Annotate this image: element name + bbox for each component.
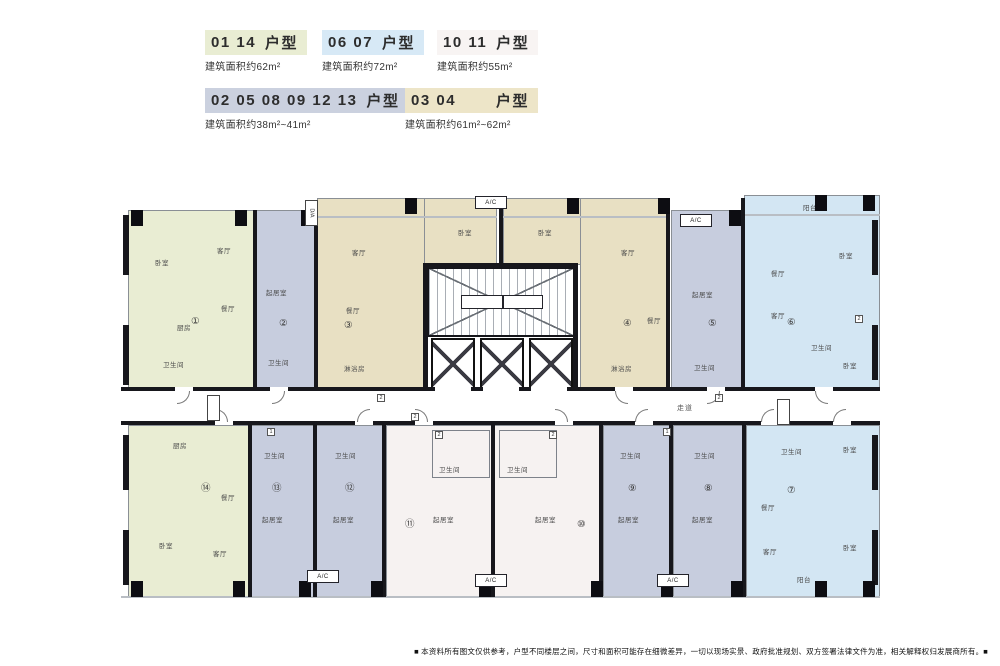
legend-area-text: 建筑面积约55m² [437, 58, 538, 73]
facade-pillar [233, 581, 245, 597]
room-label-shower: 淋浴房 [611, 367, 632, 374]
facade-pillar [131, 210, 143, 226]
unit-02: 起居室 卫生间 ② [256, 210, 316, 390]
legend-swatch: 10 11户型 [437, 30, 538, 55]
facade-pillar [371, 581, 383, 597]
legend-item-10-11: 10 11户型 建筑面积约55m² [437, 30, 538, 73]
unit-07: 卫生间 卧室 餐厅 客厅 卧室 阳台 ⑦ [746, 425, 880, 597]
corridor-label: 走道 [677, 403, 693, 413]
unit-number-05: ⑤ [708, 319, 717, 329]
room-label-bedroom: 卧室 [155, 261, 169, 268]
legend-area-text: 建筑面积约62m² [205, 58, 307, 73]
unit-10: 卫生间 起居室 ⑩ [494, 425, 602, 597]
elevator-3 [529, 338, 573, 390]
elevator-1 [431, 338, 475, 390]
unit-number-12: ⑫ [345, 484, 355, 494]
wall-segment [741, 198, 745, 390]
room-label-studio: 起居室 [692, 518, 713, 525]
room-label-bath: 卫生间 [811, 346, 832, 353]
room-label-balcony: 阳台 [797, 578, 811, 585]
room-label-studio: 起居室 [262, 518, 283, 525]
facade-pillar [299, 581, 311, 597]
door-opening [531, 387, 567, 391]
room-label-bath: 卫生间 [335, 454, 356, 461]
wall-segment [423, 265, 428, 390]
fixture-badge: 2 [855, 315, 863, 323]
room-label-living: 客厅 [621, 251, 635, 258]
legend-swatch: 03 04户型 [405, 88, 538, 113]
unit-05: 起居室 卫生间 ⑤ [671, 210, 743, 390]
unit-number-02: ② [279, 319, 288, 329]
legend-unit-numbers: 06 07 [328, 34, 373, 51]
room-label-dining: 餐厅 [221, 307, 235, 314]
facade-pillar [731, 581, 743, 597]
unit-number-13: ⑬ [272, 484, 282, 494]
door-opening [435, 387, 471, 391]
legend-item-06-07: 06 07户型 建筑面积约72m² [322, 30, 424, 73]
fixture-badge: 2 [435, 431, 443, 439]
fixture-badge: 2 [715, 394, 723, 402]
room-label-bedroom: 卧室 [458, 231, 472, 238]
room-label-living: 客厅 [217, 249, 231, 256]
stairwell [427, 267, 575, 337]
room-label-bedroom: 卧室 [839, 254, 853, 261]
wall-segment [123, 435, 129, 490]
facade-pillar [863, 195, 875, 211]
room-label-bedroom: 卧室 [843, 448, 857, 455]
wall-segment [382, 425, 386, 597]
legend-unit-suffix: 户型 [366, 90, 399, 111]
unit-number-08: ⑧ [704, 484, 713, 494]
room-label-dining: 餐厅 [771, 272, 785, 279]
room-label-bath: 卫生间 [781, 450, 802, 457]
fixture-badge: 1 [663, 428, 671, 436]
legend-unit-suffix: 户型 [496, 32, 529, 53]
facade-pillar [131, 581, 143, 597]
room-label-studio: 起居室 [535, 518, 556, 525]
balcony-rail [503, 216, 670, 218]
legend-unit-suffix: 户型 [265, 32, 298, 53]
room-label-bedroom: 卧室 [843, 364, 857, 371]
door-opening [483, 387, 519, 391]
unit-11: 卫生间 起居室 ⑪ [386, 425, 493, 597]
facade-pillar [235, 210, 247, 226]
fixture-badge: 2 [377, 394, 385, 402]
wall-segment [248, 425, 252, 597]
duct-label: D/A [308, 208, 314, 217]
unit-number-01: ① [191, 317, 200, 327]
wall-segment [872, 325, 878, 380]
disclaimer-text: ■ 本资料所有图文仅供参考，户型不同楼层之间，尺寸和面积可能存在细微差异，一切以… [414, 646, 988, 657]
legend-unit-numbers: 10 11 [443, 34, 487, 51]
facade-pillar [863, 581, 875, 597]
legend-swatch: 06 07户型 [322, 30, 424, 55]
wall-segment [123, 530, 129, 585]
balcony-rail [317, 216, 497, 218]
room-label-kitchen: 厨房 [177, 326, 191, 333]
unit-03: 客厅 餐厅 淋浴房 ③ [317, 198, 425, 390]
wall-segment [573, 265, 578, 390]
legend-area-text: 建筑面积约38m²~41m² [205, 116, 408, 131]
pipe-shaft [207, 395, 220, 421]
unit-number-07: ⑦ [787, 486, 796, 496]
wall-segment [669, 425, 673, 597]
ac-platform: A/C [475, 574, 507, 587]
unit-09: 卫生间 起居室 ⑨ [603, 425, 672, 597]
fixture-badge: 1 [267, 428, 275, 436]
room-label-studio: 起居室 [333, 518, 354, 525]
pipe-shaft [777, 399, 790, 425]
unit-06: 阳台 餐厅 客厅 卧室 卧室 卫生间 ⑥ [744, 195, 880, 390]
room-label-living: 客厅 [213, 552, 227, 559]
legend-area-text: 建筑面积约72m² [322, 58, 424, 73]
floor-plan: 走道 卧室 客厅 餐厅 厨房 卫生间 ① 起居室 卫生间 ② 阳台 卧室 客厅 … [115, 185, 880, 600]
room-label-dining: 餐厅 [647, 319, 661, 326]
wall-segment [491, 425, 495, 597]
wall-segment [123, 215, 129, 275]
unit-number-06: ⑥ [787, 318, 796, 328]
ac-platform: A/C [475, 196, 507, 209]
unit-13: 卫生间 起居室 ⑬ [251, 425, 315, 597]
legend-item-02-05-08-09-12-13: 02 05 08 09 12 13户型 建筑面积约38m²~41m² [205, 88, 408, 131]
wall-segment [599, 425, 603, 597]
unit-04: 客厅 餐厅 淋浴房 ④ [580, 198, 670, 390]
facade-pillar [658, 198, 670, 214]
unit-01: 卧室 客厅 餐厅 厨房 卫生间 ① [128, 210, 255, 390]
ac-platform: A/C [680, 214, 712, 227]
wall-segment [742, 425, 746, 597]
balcony-rail [744, 214, 880, 216]
room-label-studio: 起居室 [266, 291, 287, 298]
unit-number-14: ⑭ [201, 484, 211, 494]
wall-segment [253, 210, 257, 390]
legend-unit-numbers: 02 05 08 09 12 13 [211, 92, 357, 109]
legend-item-03-04: 03 04户型 建筑面积约61m²~62m² [405, 88, 538, 131]
fixture-badge: 2 [411, 413, 419, 421]
room-label-studio: 起居室 [618, 518, 639, 525]
room-label-dining: 餐厅 [761, 506, 775, 513]
wall-segment [872, 220, 878, 275]
legend-item-01-14: 01 14户型 建筑面积约62m² [205, 30, 307, 73]
wall-segment [872, 435, 878, 490]
room-label-kitchen: 厨房 [173, 444, 187, 451]
room-label-bath: 卫生间 [163, 363, 184, 370]
elevator-2 [480, 338, 524, 390]
wall-segment [872, 530, 878, 585]
ac-platform: A/C [657, 574, 689, 587]
unit-08: 卫生间 起居室 ⑧ [673, 425, 745, 597]
unit-number-09: ⑨ [628, 484, 637, 494]
legend-unit-numbers: 03 04 [411, 92, 456, 109]
facade-pillar [729, 210, 741, 226]
facade-pillar [815, 195, 827, 211]
room-label-bedroom: 卧室 [159, 544, 173, 551]
room-label-bath: 卫生间 [694, 454, 715, 461]
legend-area-text: 建筑面积约61m²~62m² [405, 116, 538, 131]
room-label-bath: 卫生间 [507, 468, 528, 475]
room-label-bath: 卫生间 [268, 361, 289, 368]
room-label-dining: 餐厅 [221, 496, 235, 503]
unit-number-03: ③ [344, 321, 353, 331]
facade-pillar [405, 198, 417, 214]
stair-landing-divider [502, 296, 504, 308]
room-label-studio: 起居室 [692, 293, 713, 300]
legend-unit-numbers: 01 14 [211, 34, 256, 51]
room-label-bath: 卫生间 [620, 454, 641, 461]
room-label-bath: 卫生间 [439, 468, 460, 475]
room-label-living: 客厅 [352, 251, 366, 258]
room-label-studio: 起居室 [433, 518, 454, 525]
fixture-badge: 2 [549, 431, 557, 439]
room-label-bedroom: 卧室 [843, 546, 857, 553]
facade-pillar [815, 581, 827, 597]
room-label-living: 客厅 [763, 550, 777, 557]
ac-platform: A/C [307, 570, 339, 583]
room-label-dining: 餐厅 [346, 309, 360, 316]
unit-number-04: ④ [623, 319, 632, 329]
legend-swatch: 02 05 08 09 12 13户型 [205, 88, 408, 113]
room-label-bedroom: 卧室 [538, 231, 552, 238]
wall-segment [666, 198, 670, 390]
room-label-bath: 卫生间 [694, 366, 715, 373]
room-label-shower: 淋浴房 [344, 367, 365, 374]
unit-number-10: ⑩ [577, 520, 586, 530]
wall-segment [123, 325, 129, 385]
duct-box: D/A [305, 200, 318, 226]
room-label-living: 客厅 [771, 314, 785, 321]
unit-number-11: ⑪ [405, 520, 415, 530]
legend-unit-suffix: 户型 [382, 32, 415, 53]
facade-pillar [567, 198, 579, 214]
room-label-bath: 卫生间 [264, 454, 285, 461]
wall-segment [314, 210, 318, 390]
facade-pillar [591, 581, 603, 597]
wall-segment [423, 263, 578, 268]
legend-swatch: 01 14户型 [205, 30, 307, 55]
legend-unit-suffix: 户型 [496, 90, 529, 111]
stair-landing [461, 295, 543, 309]
unit-14: 厨房 餐厅 卧室 客厅 ⑭ [128, 425, 250, 597]
